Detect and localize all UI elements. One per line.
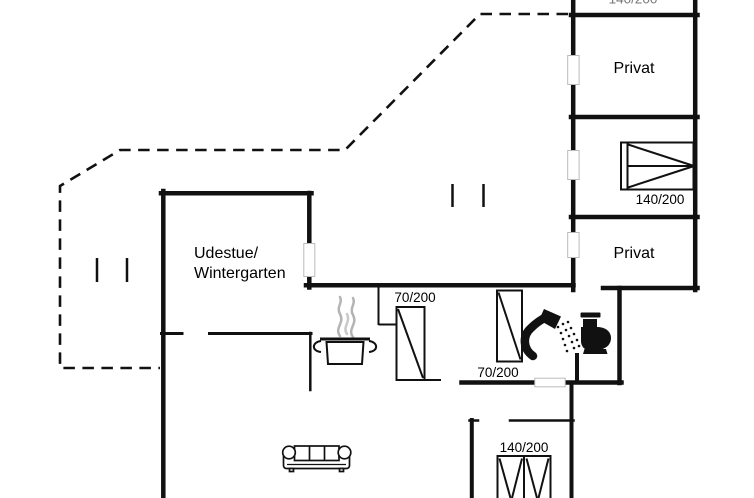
- floor-plan-svg: 70/200 70/200 140/200 140/200: [0, 0, 754, 498]
- bed-top-clipped-size-label: 140/200: [609, 0, 658, 7]
- sofa-icon: [283, 446, 351, 472]
- window-opening: [304, 244, 315, 277]
- room-label-udestue-line2: Wintergarten: [194, 265, 286, 282]
- double-bed-icon: [621, 143, 694, 190]
- sofa-foot: [340, 469, 344, 472]
- toilet-icon: [581, 313, 612, 355]
- toilet-bowl: [581, 327, 611, 350]
- pot-handle: [369, 341, 376, 352]
- room-label-udestue-line1: Udestue/: [194, 245, 259, 262]
- bed-right-size-label: 140/200: [636, 192, 685, 207]
- steam-icon: [338, 297, 354, 337]
- shower-icon: [525, 309, 580, 356]
- steam-curl: [351, 298, 354, 337]
- pot-body: [327, 342, 364, 364]
- floor-plan: 70/200 70/200 140/200 140/200: [0, 0, 754, 498]
- room-label-privat-top: Privat: [614, 60, 655, 77]
- window-opening: [568, 56, 579, 85]
- bed-bottom-size-label: 140/200: [500, 440, 549, 455]
- toilet-base: [583, 349, 608, 354]
- wall-openings: [304, 56, 579, 387]
- door-bathroom: [497, 291, 522, 362]
- window-opening: [568, 233, 579, 258]
- double-bed-icon: [498, 456, 551, 498]
- window-opening: [535, 378, 565, 387]
- cooking-pot-icon: [314, 339, 376, 364]
- pot-handle: [314, 341, 321, 352]
- window-opening: [568, 151, 579, 180]
- room-label-privat-bottom: Privat: [614, 245, 655, 262]
- toilet-tank: [583, 319, 597, 327]
- door-kitchen-size-label: 70/200: [394, 290, 435, 305]
- sofa-armrest: [338, 446, 351, 459]
- sofa-back: [295, 446, 340, 461]
- terrace-dashed-outline: [60, 14, 568, 368]
- sofa-foot: [290, 469, 294, 472]
- steam-curl: [338, 297, 341, 336]
- sofa-armrest: [283, 446, 296, 459]
- door-bathroom-size-label: 70/200: [477, 365, 518, 380]
- shower-spray: [557, 321, 581, 353]
- boundary-tick-marks: [97, 184, 484, 282]
- toilet-lid: [581, 313, 601, 318]
- steam-curl: [345, 314, 348, 334]
